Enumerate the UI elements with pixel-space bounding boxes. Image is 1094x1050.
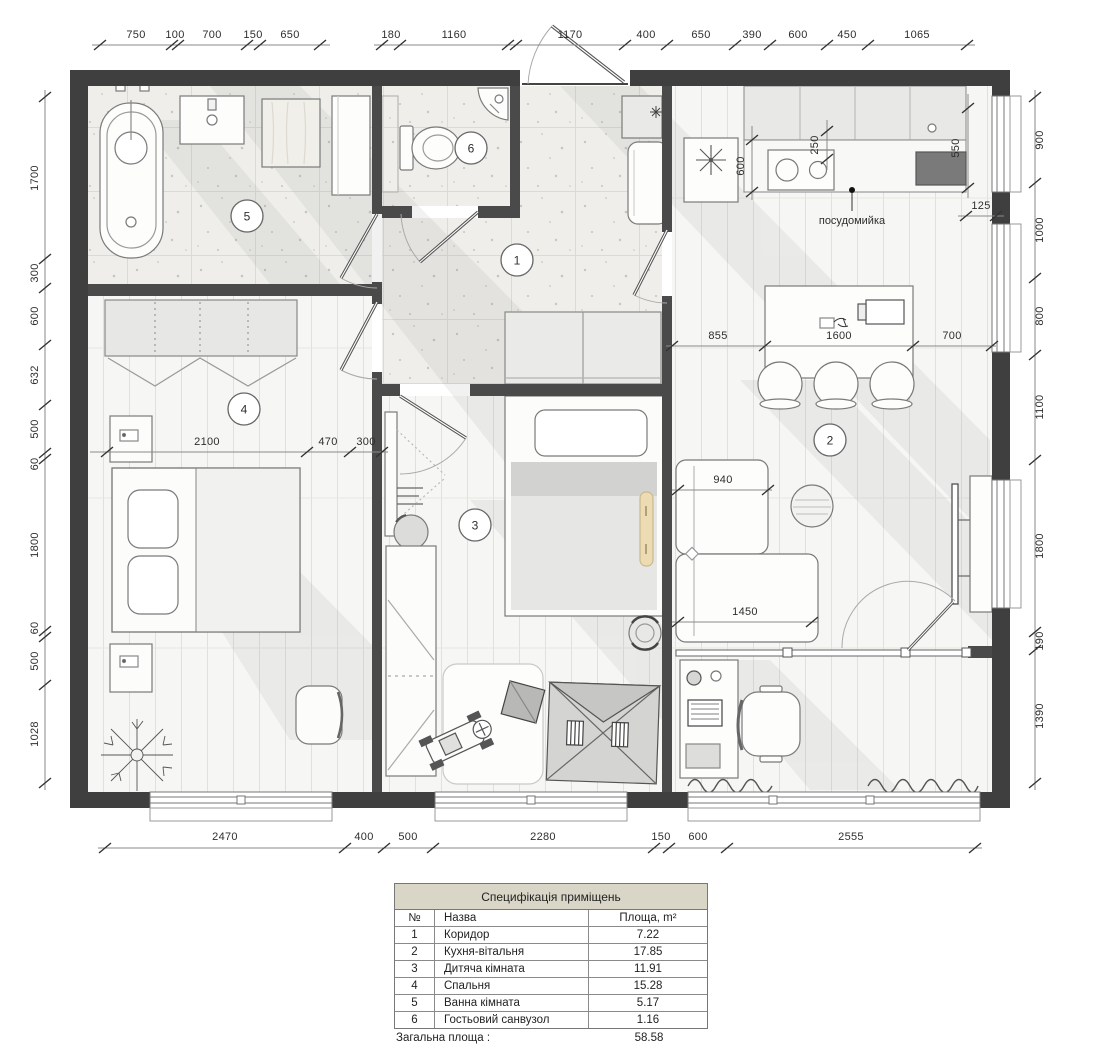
room-marker-3: 3 xyxy=(459,509,491,541)
cooktop xyxy=(768,150,834,190)
table-row: 6 Гостьовий санвузол 1.16 xyxy=(395,1012,707,1028)
pouf xyxy=(791,485,833,527)
cell-area: 7.22 xyxy=(589,927,707,944)
dim-label: 60 xyxy=(29,622,41,635)
cutting-board xyxy=(820,318,834,328)
dim-label: 1100 xyxy=(1034,395,1046,420)
laptop xyxy=(866,300,904,324)
dim-label: 650 xyxy=(691,29,710,41)
cell-area: 17.85 xyxy=(589,944,707,961)
floor-plan-page: 1 2 3 4 5 6 xyxy=(0,0,1094,1050)
table-title: Специфікація приміщень xyxy=(394,883,708,910)
dim-label: 2100 xyxy=(194,436,220,448)
dim-label: 450 xyxy=(837,29,856,41)
pillow xyxy=(128,556,178,614)
dim-label: 1390 xyxy=(1034,703,1046,729)
cell-num: 5 xyxy=(395,995,435,1012)
bed-blanket xyxy=(196,468,300,632)
table-row: 2 Кухня-вітальня 17.85 xyxy=(395,944,707,961)
dim-label: 1700 xyxy=(29,165,41,191)
floor-plan-drawing: 1 2 3 4 5 6 xyxy=(0,0,1094,880)
blanket-fold xyxy=(511,462,657,496)
dim-label: 190 xyxy=(1034,631,1046,650)
refrigerator-star-icon xyxy=(696,145,726,175)
duct-shaft xyxy=(382,96,398,192)
dim-label: 400 xyxy=(354,831,373,843)
wall-top-right xyxy=(630,70,1010,86)
dim-label: 1800 xyxy=(29,532,41,558)
dim-label: 940 xyxy=(713,474,732,486)
cell-num: 4 xyxy=(395,978,435,995)
dim-label: 1160 xyxy=(442,29,467,41)
dim-label: 500 xyxy=(398,831,417,843)
mug xyxy=(711,671,721,681)
dim-label: 180 xyxy=(381,29,400,41)
dim-label: 600 xyxy=(788,29,807,41)
room-number: 6 xyxy=(468,142,475,156)
dim-label: 855 xyxy=(708,330,727,342)
dim-label: 650 xyxy=(280,29,299,41)
dim-label: 700 xyxy=(942,330,961,342)
dim-label: 150 xyxy=(243,29,262,41)
dim-label: 900 xyxy=(1034,130,1046,149)
cell-num: 1 xyxy=(395,927,435,944)
dim-label: 390 xyxy=(742,29,761,41)
dim-label: 100 xyxy=(165,29,184,41)
office-chair xyxy=(738,686,800,762)
dim-label: 1600 xyxy=(826,330,852,342)
cell-area: 11.91 xyxy=(589,961,707,978)
dim-label: 125 xyxy=(971,200,990,212)
pillow xyxy=(128,490,178,548)
cell-name: Ванна кімната xyxy=(435,995,589,1012)
table-body: № Назва Площа, m² 1 Коридор 7.22 2 Кухня… xyxy=(394,910,708,1029)
dim-label: 470 xyxy=(318,436,337,448)
room-number: 4 xyxy=(241,403,248,417)
dim-label: 500 xyxy=(29,419,41,438)
wall-desk-panel xyxy=(385,412,397,536)
dim-label: 150 xyxy=(651,831,670,843)
cell-name: Кухня-вітальня xyxy=(435,944,589,961)
window-right-mid xyxy=(992,224,1021,352)
dim-label: 400 xyxy=(636,29,655,41)
bedroom-chair xyxy=(296,686,342,744)
dim-label: 600 xyxy=(735,156,747,175)
room-number: 5 xyxy=(244,210,251,224)
dim-label: 750 xyxy=(126,29,145,41)
desk-plant xyxy=(687,671,701,685)
window-bottom-living xyxy=(688,792,980,821)
window-right-top xyxy=(992,96,1021,192)
room-marker-4: 4 xyxy=(228,393,260,425)
dim-label: 1000 xyxy=(1034,217,1046,243)
dim-label: 300 xyxy=(29,263,41,282)
papers xyxy=(686,744,720,768)
plant xyxy=(101,719,173,791)
room-marker-2: 2 xyxy=(814,424,846,456)
specification-table: Специфікація приміщень № Назва Площа, m²… xyxy=(394,883,708,1044)
col-header-num: № xyxy=(395,910,435,927)
tv-screen xyxy=(952,484,958,604)
table-row: 4 Спальня 15.28 xyxy=(395,978,707,995)
room-number: 3 xyxy=(472,519,479,533)
dim-label: 632 xyxy=(29,365,41,384)
dim-label: 800 xyxy=(1034,306,1046,325)
pillow xyxy=(535,410,647,456)
cell-area: 15.28 xyxy=(589,978,707,995)
dim-label: 1450 xyxy=(732,606,758,618)
cell-name: Спальня xyxy=(435,978,589,995)
dishwasher-label: посудомийка xyxy=(819,215,886,227)
dim-label: 300 xyxy=(356,436,375,448)
dim-label: 600 xyxy=(29,306,41,325)
table-row: 3 Дитяча кімната 11.91 xyxy=(395,961,707,978)
window-bottom-bedroom xyxy=(150,792,332,821)
dim-label: 700 xyxy=(202,29,221,41)
cell-num: 2 xyxy=(395,944,435,961)
room-marker-6: 6 xyxy=(455,132,487,164)
dim-label: 2470 xyxy=(212,831,238,843)
table-header-row: № Назва Площа, m² xyxy=(395,910,707,927)
dim-label: 500 xyxy=(29,651,41,670)
play-mat xyxy=(443,664,543,784)
sofa xyxy=(676,554,818,642)
wardrobe xyxy=(105,300,297,356)
wall-top-left xyxy=(70,70,520,86)
table-total-row: Загальна площа : 58.58 xyxy=(394,1029,708,1044)
room-marker-1: 1 xyxy=(501,244,533,276)
dim-label: 1065 xyxy=(904,29,930,41)
play-tent xyxy=(546,682,659,784)
cell-name: Дитяча кімната xyxy=(435,961,589,978)
blanket xyxy=(511,496,657,610)
cell-num: 6 xyxy=(395,1012,435,1028)
window-bottom-children xyxy=(435,792,627,821)
col-header-name: Назва xyxy=(435,910,589,927)
dim-label: 2280 xyxy=(530,831,556,843)
cell-name: Коридор xyxy=(435,927,589,944)
toilet-tank xyxy=(400,126,413,170)
child-chair xyxy=(394,515,428,549)
dim-label: 250 xyxy=(809,135,821,154)
room-number: 1 xyxy=(514,254,521,268)
nightstand xyxy=(110,644,152,692)
total-value: 58.58 xyxy=(590,1032,708,1044)
room-number: 2 xyxy=(827,434,834,448)
washing-machine xyxy=(262,99,320,167)
dim-label: 1800 xyxy=(1034,533,1046,559)
cell-area: 5.17 xyxy=(589,995,707,1012)
dim-label: 600 xyxy=(688,831,707,843)
dim-label: 1170 xyxy=(558,29,583,41)
col-header-area: Площа, m² xyxy=(589,910,707,927)
dim-label: 60 xyxy=(29,458,41,471)
room-marker-5: 5 xyxy=(231,200,263,232)
dim-label: 2555 xyxy=(838,831,864,843)
tv-console xyxy=(970,476,992,612)
dim-label: 1028 xyxy=(29,721,41,747)
table-row: 1 Коридор 7.22 xyxy=(395,927,707,944)
dim-label: 550 xyxy=(950,138,962,157)
bolster xyxy=(640,492,653,566)
cell-name: Гостьовий санвузол xyxy=(435,1012,589,1028)
cell-area: 1.16 xyxy=(589,1012,707,1028)
table-row: 5 Ванна кімната 5.17 xyxy=(395,995,707,1012)
cell-num: 3 xyxy=(395,961,435,978)
window-right-low xyxy=(992,480,1021,608)
wall-left xyxy=(70,70,88,808)
total-label: Загальна площа : xyxy=(394,1032,590,1044)
bar-stools xyxy=(758,362,914,409)
